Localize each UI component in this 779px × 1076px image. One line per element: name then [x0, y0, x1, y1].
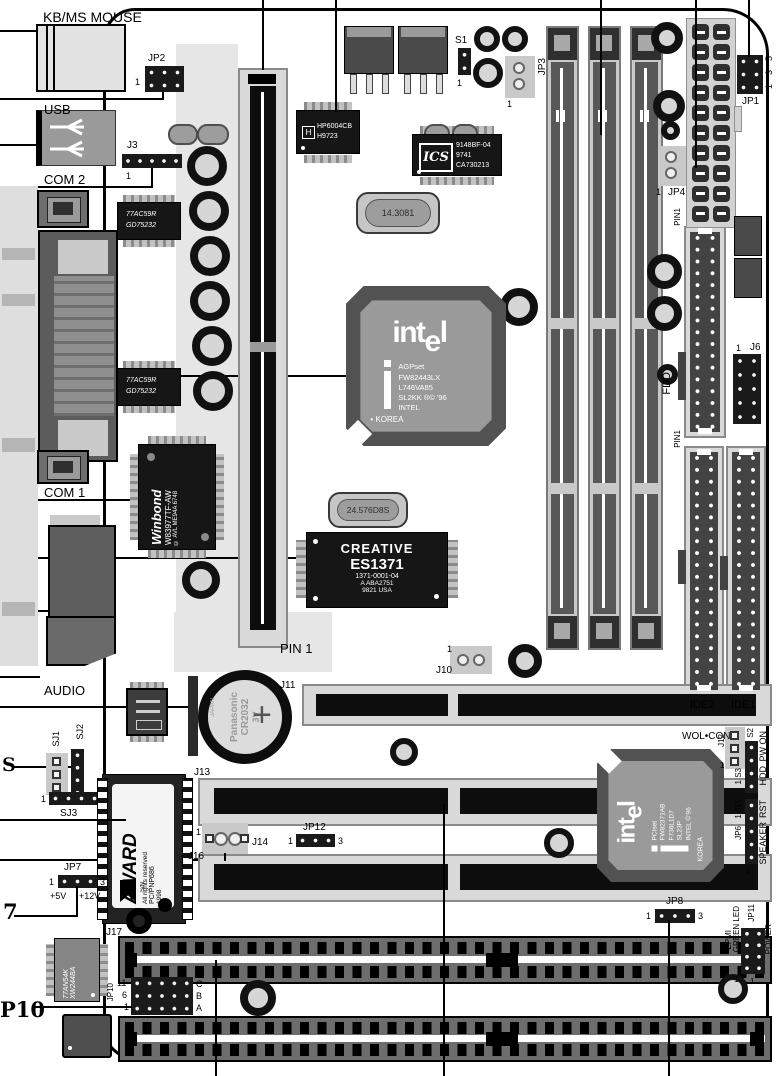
chip-pins: [130, 736, 164, 742]
chip-dot: [313, 539, 318, 544]
capacitor-icon: [190, 236, 230, 276]
jp10-pin6-label: 6: [122, 991, 127, 1000]
agp-pin1-label: PIN 1: [280, 642, 313, 655]
j3-header: [122, 154, 182, 168]
ide-slot-mark: [697, 449, 711, 455]
die-mark-bar: [384, 371, 391, 409]
jp11-jumper: [741, 928, 765, 974]
jp10-a-label: A: [196, 1004, 202, 1013]
battery-plus-icon: +: [252, 696, 272, 735]
atx-socket: [713, 186, 730, 202]
j6-label: J6: [750, 343, 761, 353]
j12-label: J12: [718, 734, 726, 747]
io-bracket-tab: [2, 438, 35, 452]
j12-pin: [730, 744, 739, 753]
com1-port: [37, 450, 89, 484]
j6-header: [733, 354, 761, 424]
southbridge-rotated: intel PCIset FW82371AB F736L1D7 SL23P IN…: [606, 763, 715, 867]
dimm-tab: [593, 483, 616, 494]
atx-socket: [713, 206, 730, 222]
isa-key-block: [125, 1032, 137, 1046]
callout-line: [748, 0, 750, 57]
jp1-pin1-label: 1: [765, 84, 774, 89]
callout-line: [443, 804, 445, 1076]
dimm-tab: [593, 318, 616, 329]
j16-slot-bar: [214, 864, 448, 890]
capacitor-icon: [192, 326, 232, 366]
jp4-label: JP4: [668, 188, 685, 198]
kbms-label: KB/MS MOUSE: [43, 10, 142, 24]
chip-marking: 77AN54K XW244BA: [63, 943, 77, 999]
chip-marking: 1998: [156, 788, 163, 904]
chip-marking: CA730213: [456, 162, 489, 169]
fdd-label: FDD: [662, 372, 673, 395]
bios-notch: [126, 908, 152, 934]
chip-dot: [147, 453, 155, 461]
power-hdd-header: [745, 741, 758, 793]
callout-line: [76, 886, 78, 917]
transistor-leg: [366, 74, 373, 94]
chip-marking: PC/PNP686: [149, 788, 156, 904]
chip-marking: AGPset FW82443LX L746VA85 SL2KK ®© '96 I…: [398, 362, 446, 413]
atx-socket: [713, 125, 730, 141]
rst-label: RST: [759, 800, 768, 818]
crystal-marking: 14.3081: [365, 199, 431, 227]
j3-pin1-label: 1: [126, 172, 131, 181]
j13-label: J13: [194, 768, 210, 778]
capacitor-icon: [240, 980, 276, 1016]
atx-socket: [713, 105, 730, 121]
chip-marking: W83977TF-AW: [164, 451, 173, 545]
com1-label: COM 1: [44, 486, 85, 499]
jp7-12v-label: +12V: [79, 892, 100, 901]
small-audio-ic: [126, 688, 168, 736]
jp4-pin: [665, 151, 677, 163]
inductor-icon: [197, 124, 229, 145]
chip-marking: 77AC59R: [126, 377, 156, 384]
jp1-pin5-label: 5: [765, 56, 774, 61]
chip-marking: ES1371: [307, 556, 447, 573]
agp-slot-line: [261, 92, 264, 342]
j10-label: J10: [436, 666, 452, 676]
usb-symbol-icon: [46, 115, 112, 163]
kbms-connector-detail: [46, 26, 48, 90]
jp10-c-label: C: [196, 980, 203, 989]
agp-slot-line: [261, 352, 264, 624]
callout-line: [600, 0, 602, 135]
usb-label: USB: [44, 103, 71, 116]
intel-logo: intel: [392, 318, 446, 348]
hdd-label: HDD: [759, 766, 768, 786]
s2-label: S2: [747, 728, 755, 738]
j11-label: J11: [280, 681, 295, 691]
capacitor-icon: [473, 58, 503, 88]
chip-marking: 9148BF-04: [456, 142, 491, 149]
audio-label: AUDIO: [44, 684, 85, 697]
dimm-latch: [590, 616, 619, 648]
com2-label: COM 2: [44, 173, 85, 186]
dimm-latch: [590, 28, 619, 60]
s1-label: S1: [455, 36, 467, 46]
ic-detail: [136, 700, 160, 703]
fdd-slot-mark: [698, 228, 712, 234]
j10-pin: [473, 654, 485, 666]
capacitor-icon: [189, 191, 229, 231]
atx-socket: [713, 64, 730, 80]
chip-marking: GD75232: [126, 388, 156, 395]
dimm-latch: [548, 616, 577, 648]
transistor: [344, 26, 394, 74]
callout-line: [151, 168, 153, 188]
chip-marking: 1371-0001-04: [307, 573, 447, 580]
audio-codec-chip: CREATIVE ES1371 1371-0001-04 A ABA2751 9…: [306, 532, 448, 608]
dimm-tab: [551, 483, 574, 494]
atx-latch-tab: [734, 106, 742, 132]
jp8-pin3-label: 3: [698, 912, 703, 921]
chip-marking: • KOREA: [370, 415, 403, 424]
s3-label: 1 S3: [735, 768, 743, 784]
isa-key-block: [486, 1032, 518, 1046]
j15-label: 1 J15: [735, 799, 743, 819]
ide1-key-notch: [720, 556, 728, 590]
callout-line: [0, 98, 164, 100]
isa-key-block: [125, 953, 137, 967]
agp-slot-divider: [250, 342, 276, 352]
dimm-latch: [548, 28, 577, 60]
kbms-connector-detail: [53, 26, 55, 90]
atx-socket: [713, 165, 730, 181]
rs232-driver-chip: 77AC59R GD75232: [117, 202, 181, 240]
ic-detail: [136, 710, 160, 713]
jp12-label: JP12: [303, 823, 326, 833]
callout-line: [335, 0, 337, 112]
s1-jumper: [458, 48, 471, 75]
chip-marking: 77AC59R: [126, 211, 156, 218]
capacitor-icon: [651, 22, 683, 54]
capacitor-icon: [661, 121, 680, 140]
atx-power-connector: [686, 18, 736, 228]
j10-pin: [457, 654, 469, 666]
bios-sn-label: S/N: [140, 882, 146, 892]
jp2-jumper: [145, 66, 184, 92]
chip-pins: [448, 540, 458, 598]
sj1-pin: [52, 757, 61, 766]
jp4-pin: [665, 167, 677, 179]
jp7-pin3-label: 3: [100, 878, 105, 887]
dimm-contact-line: [560, 68, 563, 608]
chip-pins: [148, 436, 206, 444]
pwon-label: PW ON: [759, 731, 768, 762]
jp3-label: JP3: [538, 58, 548, 75]
transistor-leg: [420, 74, 427, 94]
chip-pins: [216, 454, 224, 540]
jp3-pin1-label: 1: [507, 100, 512, 109]
jp11-label: JP11: [748, 904, 756, 922]
chip-dot: [91, 993, 95, 997]
battery-japan-label: JAPAN: [210, 698, 216, 717]
callout-line: [224, 853, 226, 861]
jp2-pin1-label: 1: [135, 78, 140, 87]
jp10-b-label: B: [196, 992, 202, 1001]
bios-pins: [182, 778, 193, 920]
transistor: [398, 26, 448, 74]
callout-p10-label: P10: [0, 999, 45, 1020]
capacitor-icon: [390, 738, 418, 766]
jp10-label: JP10: [107, 983, 115, 1001]
j14-pin1-label: 1: [196, 828, 201, 837]
jp6-label: JP6: [735, 826, 743, 840]
capacitor-icon: [647, 254, 682, 289]
chip-marking: KOREA: [698, 837, 705, 862]
ide1-pins: [732, 452, 760, 690]
chip-pins: [420, 177, 494, 185]
capacitor-icon: [190, 281, 230, 321]
atx-socket: [692, 206, 709, 222]
dimm-contact-line: [644, 68, 647, 608]
jp10-pin1-label: 1: [124, 1003, 129, 1012]
jp1-label: JP1: [742, 97, 759, 107]
chip-pins: [130, 454, 138, 540]
chip-marking: PCIset FW82371AB F736L1D7 SL23P INTEL ©'…: [652, 804, 694, 841]
southbridge-chip: intel PCIset FW82371AB F736L1D7 SL23P IN…: [597, 749, 724, 882]
northbridge-die: intel AGPset FW82443LX L746VA85 SL2KK ®©…: [360, 300, 491, 431]
j17-label: J17: [106, 928, 122, 938]
dimm-key: [640, 110, 643, 122]
j16-label: J16: [188, 852, 204, 862]
superio-markings: Winbond W83977TF-AW © AVL ME94A 6748: [149, 451, 179, 545]
chip-pins: [46, 944, 54, 996]
clockgen-logo: ICS: [419, 143, 453, 172]
j3-label: J3: [127, 141, 138, 151]
regulator-chip: H HP6004CB H9723: [296, 110, 360, 154]
capacitor-icon: [182, 561, 220, 599]
isa-key-block: [750, 1032, 764, 1046]
j13-slot-bar: [214, 788, 448, 814]
callout-line: [215, 960, 217, 1076]
sj1-label: SJ1: [52, 731, 61, 747]
ide2-key-notch: [678, 550, 686, 584]
ic-detail: [136, 720, 162, 730]
usb-connector: [36, 110, 116, 166]
jp4-pin1-label: 1: [656, 188, 661, 197]
ide2-pins: [690, 452, 718, 690]
jp7-5v-label: +5V: [50, 892, 66, 901]
chip-pins: [123, 406, 175, 413]
lpt-top-block: [58, 240, 108, 274]
dimm-tab: [551, 318, 574, 329]
crystal-14mhz: 14.3081: [356, 192, 440, 234]
small-ic: [62, 1014, 112, 1058]
jp8-jumper: [655, 909, 695, 923]
jp3-pin: [513, 62, 525, 74]
sj3-header: [49, 792, 101, 805]
io-bracket-tab: [2, 602, 35, 616]
intel-logo: intel: [616, 802, 640, 844]
jp8-label: JP8: [666, 897, 683, 907]
j12-pin: [730, 757, 739, 766]
dimm-key: [604, 110, 607, 122]
ide-slot-mark: [739, 685, 753, 691]
capacitor-icon: [193, 371, 233, 411]
callout-line: [0, 819, 126, 821]
chip-marking: 9741: [456, 152, 472, 159]
jp12-pin1-label: 1: [288, 837, 293, 846]
greenled-label: GREEN LED: [733, 906, 741, 952]
chip-pins: [304, 155, 352, 163]
chip-marking: A ABA2751: [307, 580, 447, 587]
callout-7-label: 7: [3, 901, 18, 922]
dimm-key: [556, 110, 559, 122]
transistor-leg: [404, 74, 411, 94]
capacitor-icon: [544, 828, 574, 858]
fp-pin1-label: 1: [746, 868, 750, 876]
chip-pins: [296, 540, 306, 598]
dimm-slot-3: [630, 26, 663, 650]
callout-line: [695, 0, 697, 168]
logic-ic: 77AN54K XW244BA: [54, 938, 100, 1002]
bios-dot: [158, 898, 172, 912]
atx-socket: [713, 44, 730, 60]
northbridge-chip: intel AGPset FW82443LX L746VA85 SL2KK ®©…: [346, 286, 506, 446]
jp7-pin1-label: 1: [49, 878, 54, 887]
j12-pin: [730, 731, 739, 740]
j10-pin1-label: 1: [447, 645, 452, 654]
chip-marking: © AVL ME94A 6748: [173, 451, 179, 545]
battery: Panasonic CR2032 3V JAPAN +: [198, 670, 292, 764]
atx-socket: [713, 24, 730, 40]
winbond-logo: Winbond: [149, 451, 164, 545]
atx-socket: [713, 145, 730, 161]
jp8-pin1-label: 1: [646, 912, 651, 921]
sj3-label: SJ3: [60, 809, 77, 819]
jp11-pin1-label: 1: [734, 976, 738, 984]
jp12-jumper: [296, 834, 335, 847]
transistor-tab: [401, 27, 445, 37]
power-label: POWER: [765, 924, 773, 954]
capacitor-icon: [653, 90, 685, 122]
callout-line: [262, 0, 264, 70]
die-mark-bar: [661, 845, 689, 851]
j6-pin1-label: 1: [736, 344, 741, 353]
chip-marking: HP6004CB: [317, 123, 352, 130]
jp2-label: JP2: [148, 54, 165, 64]
chip-pins: [148, 550, 206, 558]
jp10-header: [131, 977, 193, 1015]
chip-marking: H9723: [317, 133, 338, 140]
callout-line: [668, 920, 670, 1076]
j11-slot-bar: [316, 694, 448, 716]
superio-chip: Winbond W83977TF-AW © AVL ME94A 6748: [138, 444, 216, 550]
bios-sticker: AWARD All rights reserved PC/PNP686 1998…: [112, 784, 174, 908]
capacitor-icon: [474, 26, 500, 52]
dimm-slot-1: [546, 26, 579, 650]
j14-pin: [240, 834, 249, 843]
creative-logo: CREATIVE: [307, 541, 447, 556]
chip-marking: 9821 USA: [307, 587, 447, 594]
com2-port: [37, 190, 89, 228]
dimm-key: [562, 110, 565, 122]
sj1-pin: [52, 770, 61, 779]
atx-socket: [713, 85, 730, 101]
kbms-connector: [36, 24, 126, 92]
crystal-24mhz: 24.576D8S: [328, 492, 408, 528]
callout-line: [0, 676, 40, 678]
motherboard-diagram: PIN 1 KB/MS MOUSE JP2 1 USB J3 1 COM 2: [0, 0, 779, 1076]
crystal-marking: 24.576D8S: [337, 499, 399, 521]
callout-line: [32, 1006, 132, 1008]
chip-pins: [123, 361, 175, 368]
ide2-label: IDE2: [690, 700, 714, 711]
chip-pins: [123, 240, 175, 247]
dimm-key: [646, 110, 649, 122]
capacitor-icon: [647, 296, 682, 331]
speaker-label: SPEAKER: [759, 822, 768, 865]
com2-port-core: [53, 202, 73, 215]
capacitor-icon: [718, 974, 748, 1004]
chip-marking: GD75232: [126, 222, 156, 229]
small-ic: [734, 258, 762, 298]
dimm-slot-2: [588, 26, 621, 650]
transistor-leg: [382, 74, 389, 94]
jp7-label: JP7: [64, 863, 81, 873]
sj1-pin: [52, 783, 61, 792]
sj2-label: SJ2: [76, 724, 85, 740]
callout-line: [0, 30, 38, 32]
isa-key-block: [486, 953, 518, 967]
battery-bracket: [188, 676, 198, 756]
inductor-icon: [168, 124, 198, 145]
rs232-driver-chip: 77AC59R GD75232: [117, 368, 181, 406]
ide-pin1-label: PIN1: [674, 430, 682, 448]
dimm-tab: [635, 483, 658, 494]
jp10-pin11-label: 11: [117, 979, 126, 988]
dimm-contact-line: [602, 68, 605, 608]
fdd-pin1-label: PIN1: [674, 208, 682, 226]
clock-generator-chip: ICS 9148BF-04 9741 CA730213: [412, 134, 502, 176]
atx-socket: [692, 186, 709, 202]
ide1-label: IDE1: [731, 700, 755, 711]
capacitor-icon: [187, 146, 227, 186]
fdd-pins: [690, 232, 720, 432]
rst-speaker-header: [745, 799, 758, 864]
chip-pins: [304, 102, 352, 110]
j12-pin1-label: 1: [720, 762, 724, 770]
chip-pins: [123, 195, 175, 202]
lpt-port: [38, 230, 118, 462]
chip-dot: [201, 533, 209, 541]
capacitor-icon: [508, 644, 542, 678]
transistor-leg: [436, 74, 443, 94]
ide-slot-mark: [739, 449, 753, 455]
fdd-slot-mark: [698, 428, 712, 434]
capacitor-icon: [502, 26, 528, 52]
io-bracket-tab: [2, 294, 35, 306]
regulator-logo: H: [302, 126, 315, 139]
sj3-pin1-label: 1: [41, 795, 46, 804]
die-mark-bar: [652, 845, 658, 851]
transistor-leg: [350, 74, 357, 94]
southbridge-die: intel PCIset FW82371AB F736L1D7 SL23P IN…: [608, 761, 712, 870]
io-bracket-tab: [2, 248, 35, 260]
lpt-ribbed: [54, 276, 114, 416]
jp3-pin: [513, 78, 525, 90]
jp1-pin3-label: 3: [765, 70, 774, 75]
j14-pin: [205, 834, 214, 843]
jp12-pin3-label: 3: [338, 837, 343, 846]
dimm-latch: [632, 616, 661, 648]
j14-label: J14: [252, 838, 268, 848]
com1-port-core: [53, 461, 73, 473]
